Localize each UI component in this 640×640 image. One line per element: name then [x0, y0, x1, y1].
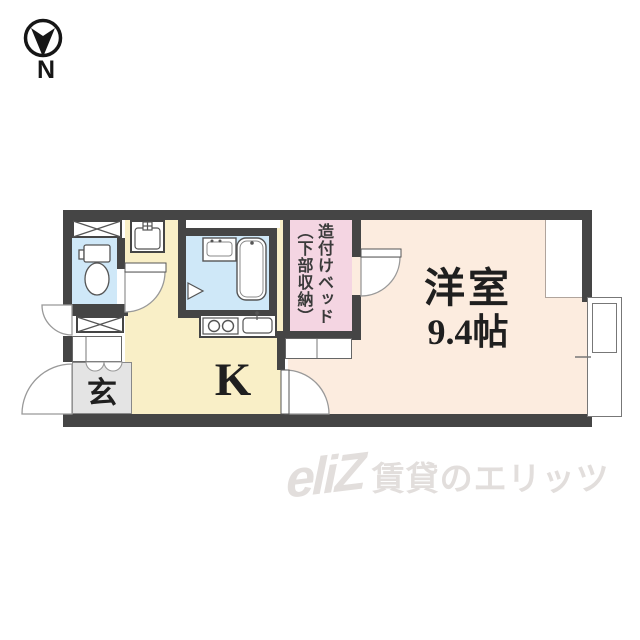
western-room-label: 洋室 9.4帖 — [393, 266, 543, 352]
toilet-right-wall — [117, 238, 125, 269]
outer-wall-left-upper — [63, 210, 72, 305]
storage-x-box-mid — [76, 316, 124, 333]
bed-closet-line1: 造付けベッド — [315, 223, 332, 325]
toilet-bottom-wall — [72, 304, 128, 316]
washer-pan — [130, 220, 165, 253]
bathroom — [178, 228, 277, 318]
entrance-label: 玄 — [83, 368, 121, 412]
watermark: eliZ 賃貸のエリッツ — [286, 446, 610, 506]
kitchen-room-partition — [277, 331, 285, 370]
north-label: N — [33, 56, 59, 85]
storage-x-box-top — [72, 220, 122, 238]
watermark-logo: eliZ — [286, 441, 364, 511]
kitchen-counter — [199, 314, 277, 338]
outer-wall-top — [63, 210, 592, 220]
bed-closet-left-wall — [283, 210, 290, 340]
western-room-area: 9.4帖 — [393, 312, 543, 352]
floor-plan-page: N 洋室 9.4帖 K 玄 造付けベッド （下部収納） eliZ 賃貸のエリッツ — [0, 0, 640, 640]
bed-closet-label: 造付けベッド （下部収納） — [292, 223, 333, 329]
outer-wall-bottom — [63, 414, 592, 427]
kitchen-label: K — [206, 353, 260, 407]
window-inner-panel — [592, 303, 617, 353]
outer-wall-right — [582, 210, 592, 302]
shoe-cabinet — [72, 336, 122, 362]
utility-door-arc — [42, 305, 72, 335]
toilet-room-floor — [72, 238, 117, 304]
western-room-name: 洋室 — [393, 266, 543, 312]
strip-above-bathroom — [186, 220, 280, 228]
entrance-door-arc — [22, 364, 72, 414]
pipe-space-notch — [545, 220, 582, 298]
compass-icon — [23, 18, 63, 58]
shelf — [285, 338, 352, 359]
outer-wall-left-mid — [63, 336, 72, 362]
bed-closet-line2: （下部収納） — [294, 223, 311, 325]
watermark-text: 賃貸のエリッツ — [372, 452, 610, 500]
bed-closet-right-wall-upper — [352, 210, 361, 257]
